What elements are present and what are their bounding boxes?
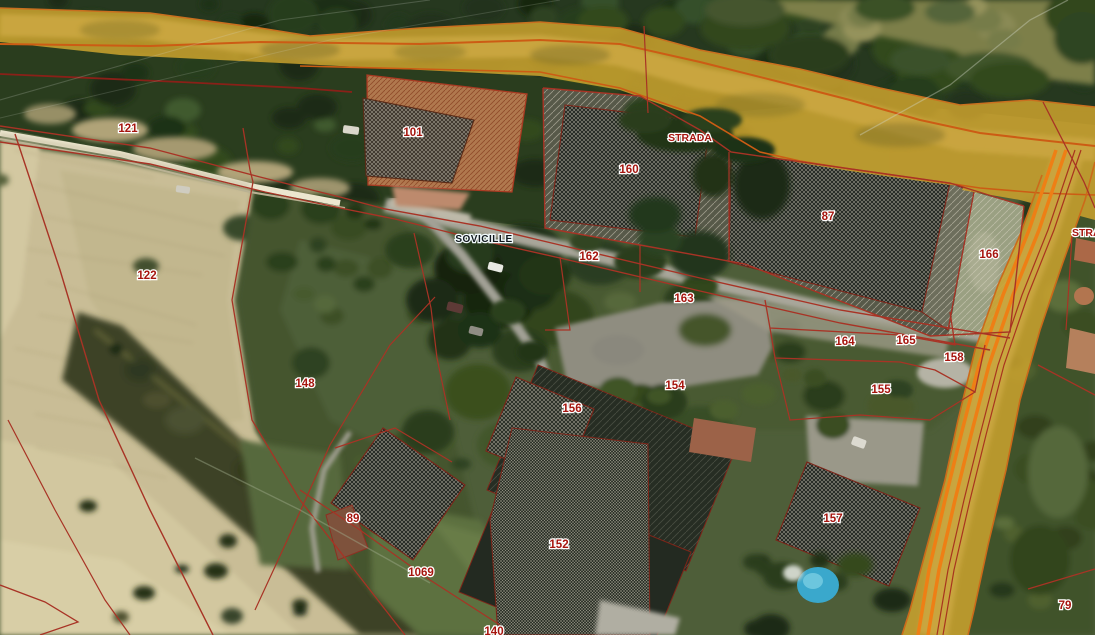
svg-text:148: 148 <box>295 378 315 390</box>
svg-text:166: 166 <box>979 249 998 261</box>
svg-text:140: 140 <box>484 626 503 635</box>
svg-text:SOVICILLE: SOVICILLE <box>455 234 512 245</box>
svg-text:160: 160 <box>619 164 638 176</box>
svg-text:STRA: STRA <box>1072 227 1095 239</box>
svg-text:165: 165 <box>896 335 916 347</box>
svg-text:79: 79 <box>1059 600 1072 612</box>
svg-text:158: 158 <box>944 352 964 364</box>
svg-text:STRADA: STRADA <box>668 132 712 144</box>
svg-text:121: 121 <box>118 123 138 135</box>
svg-text:152: 152 <box>549 539 568 551</box>
svg-text:154: 154 <box>665 380 685 392</box>
svg-text:157: 157 <box>823 513 842 525</box>
svg-text:101: 101 <box>403 127 423 139</box>
svg-text:87: 87 <box>822 211 835 223</box>
svg-text:122: 122 <box>137 270 156 282</box>
svg-text:89: 89 <box>347 513 360 525</box>
svg-text:156: 156 <box>562 403 581 415</box>
svg-text:164: 164 <box>835 336 855 348</box>
svg-text:155: 155 <box>871 384 891 396</box>
svg-text:163: 163 <box>674 293 693 305</box>
svg-text:162: 162 <box>579 251 598 263</box>
svg-text:1069: 1069 <box>408 567 434 579</box>
